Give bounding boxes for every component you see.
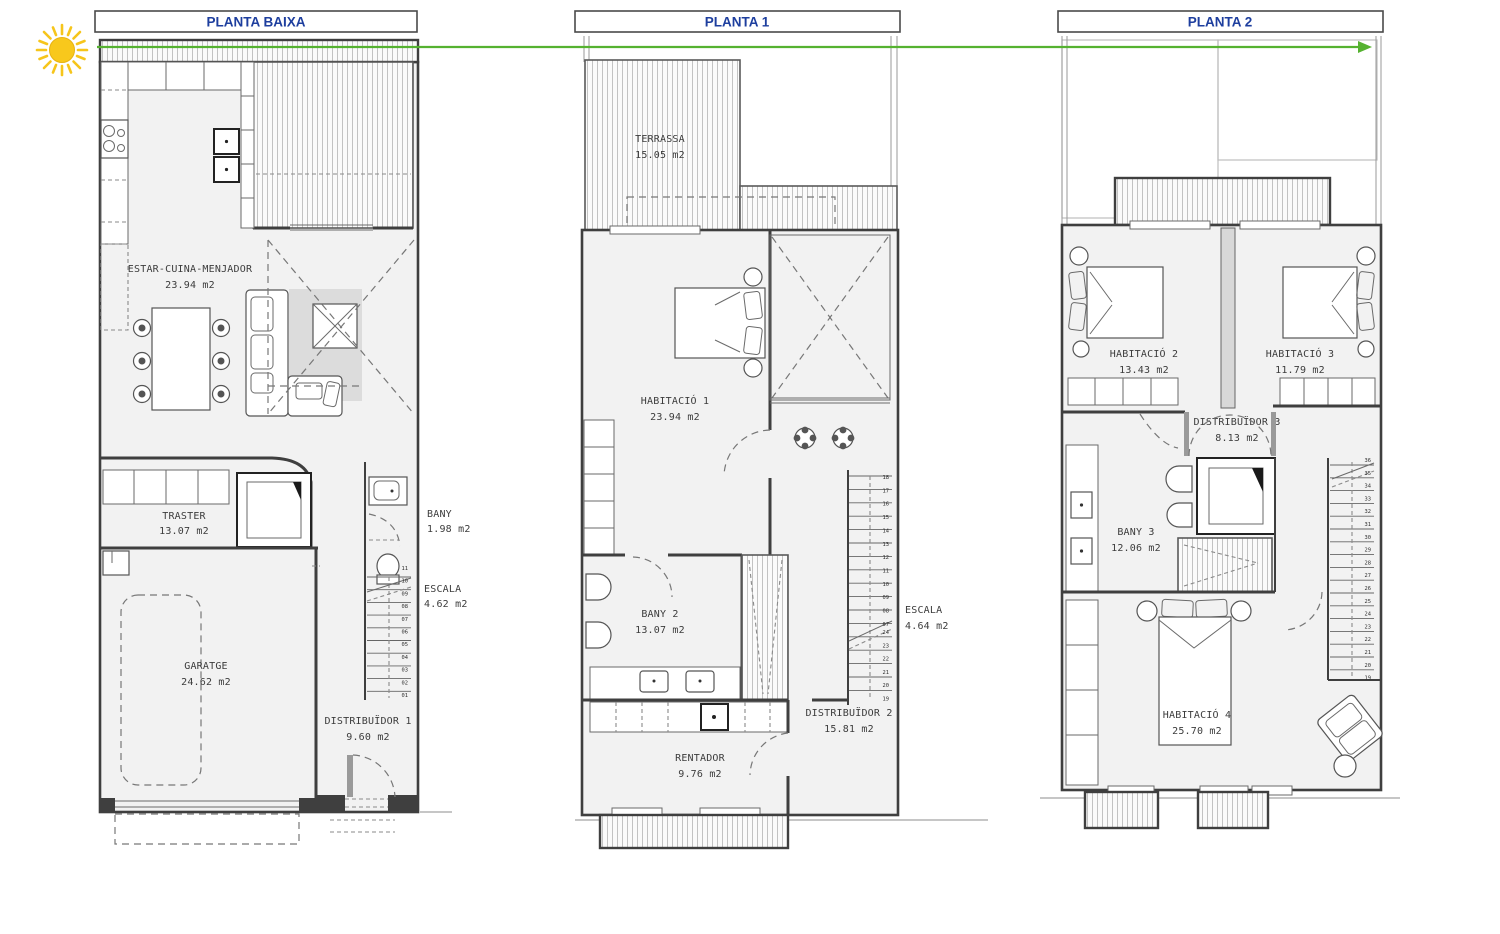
stair-step-number: 08 [883, 609, 890, 615]
room-area: 13.07 m2 [635, 625, 685, 636]
room-label: TRASTER [162, 511, 206, 522]
stair-step-number: 21 [883, 670, 890, 676]
stair-step-number: 23 [1365, 624, 1372, 630]
utility-box [103, 551, 129, 575]
room-area: 9.76 m2 [678, 769, 722, 780]
stair-step-number: 05 [402, 642, 409, 648]
room-label: GARATGE [184, 661, 228, 672]
sink-drain-dot [653, 680, 656, 683]
room-label: DISTRIBUÏDOR 3 [1193, 415, 1280, 428]
wall-block [317, 795, 345, 812]
room-label: BANY [427, 509, 452, 520]
front-porch-hatch [100, 40, 418, 62]
room-label: ESTAR-CUINA-MENJADOR [128, 264, 253, 275]
room-label: TERRASSA [635, 134, 685, 145]
plan-title: PLANTA 1 [705, 15, 770, 30]
wash-basin-icon [1166, 466, 1192, 492]
stair-step-number: 01 [402, 693, 409, 699]
sink-drain-dot [391, 490, 394, 493]
stair-step-number: 10 [402, 579, 409, 585]
stair-step-number: 17 [883, 488, 890, 494]
room-area: 23.94 m2 [650, 412, 700, 423]
chairs-right [213, 320, 230, 403]
stair-step-number: 29 [1365, 548, 1372, 554]
balcony-hatch [1198, 792, 1268, 828]
stair-step-number: 33 [1365, 496, 1372, 502]
kitchen-counter-top [128, 62, 242, 90]
round-table-icon [1334, 755, 1356, 777]
room-label: BANY 3 [1117, 527, 1154, 538]
stair-step-number: 21 [1365, 650, 1372, 656]
room-area: 23.94 m2 [165, 280, 215, 291]
center-wall [1221, 228, 1235, 408]
room-label: DISTRIBUÏDOR 1 [324, 714, 411, 727]
driveway-dashed [115, 814, 299, 844]
stair-step-number: 09 [883, 595, 890, 601]
room-label: HABITACIÓ 3 [1266, 347, 1334, 360]
dining-table-set [134, 308, 230, 410]
wash-basin-icon [586, 574, 611, 600]
lift-shaft [237, 473, 311, 547]
stair-step-number: 30 [1365, 535, 1372, 541]
terrace-hatch [585, 60, 740, 230]
rear-terrace-hatch [253, 62, 413, 228]
wall-block [101, 798, 115, 812]
stair-step-number: 19 [883, 697, 890, 703]
floor-plans-canvas: PLANTA BAIXA [0, 0, 1500, 934]
window-sill [610, 226, 700, 234]
room-label: ESCALA [424, 584, 461, 595]
stair-step-number: 22 [883, 657, 890, 663]
stair-step-number: 31 [1365, 522, 1372, 528]
wash-basin-icon [1167, 503, 1192, 527]
toilet-icon [377, 554, 399, 584]
laundry-counter [590, 702, 788, 732]
arrow-head [1358, 41, 1372, 53]
kitchen-tall-cabinet [241, 62, 254, 228]
stair-step-number: 18 [883, 475, 890, 481]
stair-step-number: 11 [402, 566, 409, 572]
room-label: RENTADOR [675, 753, 726, 764]
terrace-strip-hatch [740, 186, 897, 230]
stair-step-number: 13 [883, 542, 890, 548]
room-area: 24.62 m2 [181, 677, 231, 688]
door-leaf [347, 755, 353, 797]
room-label: DISTRIBUÏDOR 2 [805, 706, 892, 719]
stair-step-number: 27 [1365, 573, 1372, 579]
stair-step-number: 28 [1365, 560, 1372, 566]
plan-planta-2: PLANTA 2 HABITACIÓ 2 13.43 m2 [1040, 11, 1400, 828]
top-balcony-hatch [1115, 178, 1330, 225]
closet-column [1066, 445, 1098, 593]
room-label: HABITACIÓ 4 [1163, 708, 1231, 721]
cooktop-dot [225, 140, 228, 143]
stair-step-number: 34 [1365, 484, 1372, 490]
stair-step-number: 14 [883, 528, 890, 534]
wall-block [388, 795, 418, 812]
room-area: 15.81 m2 [824, 724, 874, 735]
plan-planta-1: PLANTA 1 TERRASSA 15.05 m2 HABITACIÓ 1 2… [575, 11, 988, 848]
oven-dot [225, 168, 228, 171]
stair-step-number: 02 [402, 680, 409, 686]
stair-step-number: 11 [883, 569, 890, 575]
cabinet-dot [1080, 549, 1083, 552]
stair-step-number: 03 [402, 668, 409, 674]
stair-step-number: 32 [1365, 509, 1372, 515]
lift-shaft [1197, 458, 1275, 534]
sun-icon [37, 25, 87, 75]
room-label: ESCALA [905, 605, 942, 616]
stair-step-number: 35 [1365, 471, 1372, 477]
balcony-hatch [600, 815, 788, 848]
stove-icon [101, 120, 128, 158]
window-sill [1130, 221, 1210, 229]
closet-column [1066, 600, 1098, 785]
stair-step-number: 15 [883, 515, 890, 521]
cabinet-dot [1080, 503, 1083, 506]
stair-step-number: 36 [1365, 458, 1372, 464]
room-area: 11.79 m2 [1275, 365, 1325, 376]
room-area: 1.98 m2 [427, 524, 471, 535]
plan-title: PLANTA BAIXA [207, 15, 306, 30]
wash-basin-icon [586, 622, 611, 648]
door-leaf [1184, 412, 1189, 456]
window-sill [1240, 221, 1320, 229]
stair-step-number: 19 [1365, 676, 1372, 682]
floor-plan-sheet: PLANTA BAIXA [0, 0, 1500, 934]
stair-step-number: 10 [883, 582, 890, 588]
balcony-hatch [1085, 792, 1158, 828]
stair-step-number: 04 [402, 655, 409, 661]
stair-step-number: 20 [883, 683, 890, 689]
sun-disc [50, 38, 75, 63]
stair-step-number: 23 [883, 643, 890, 649]
stair-step-number: 24 [1365, 612, 1372, 618]
lower-stair-flight [742, 555, 788, 700]
room-label: HABITACIÓ 2 [1110, 347, 1178, 360]
plan-planta-baixa: PLANTA BAIXA [95, 11, 471, 844]
stair-step-number: 08 [402, 604, 409, 610]
chairs-left [134, 320, 151, 403]
room-area: 4.62 m2 [424, 599, 468, 610]
room-area: 13.43 m2 [1119, 365, 1169, 376]
room-area: 9.60 m2 [346, 732, 390, 743]
stair-step-number: 25 [1365, 599, 1372, 605]
stair-step-number: 07 [883, 622, 890, 628]
stair-step-number: 12 [883, 555, 890, 561]
room-area: 15.05 m2 [635, 150, 685, 161]
room-area: 12.06 m2 [1111, 543, 1161, 554]
room-label: HABITACIÓ 1 [641, 394, 709, 407]
stair-step-number: 24 [883, 630, 890, 636]
stair-step-number: 22 [1365, 637, 1372, 643]
dining-table [152, 308, 210, 410]
stair-step-number: 16 [883, 502, 890, 508]
stair-step-number: 26 [1365, 586, 1372, 592]
stair-step-number: 09 [402, 591, 409, 597]
stair-step-number: 06 [402, 630, 409, 636]
closet-column [584, 420, 614, 555]
sink-drain-dot [699, 680, 702, 683]
room-area: 13.07 m2 [159, 526, 209, 537]
room-area: 8.13 m2 [1215, 433, 1259, 444]
stair-step-number: 20 [1365, 663, 1372, 669]
door-leaf [1271, 412, 1276, 456]
plan-title: PLANTA 2 [1188, 15, 1253, 30]
room-area: 25.70 m2 [1172, 726, 1222, 737]
room-area: 4.64 m2 [905, 621, 949, 632]
stair-step-number: 07 [402, 617, 409, 623]
washer-dot [712, 715, 716, 719]
room-label: BANY 2 [641, 609, 678, 620]
